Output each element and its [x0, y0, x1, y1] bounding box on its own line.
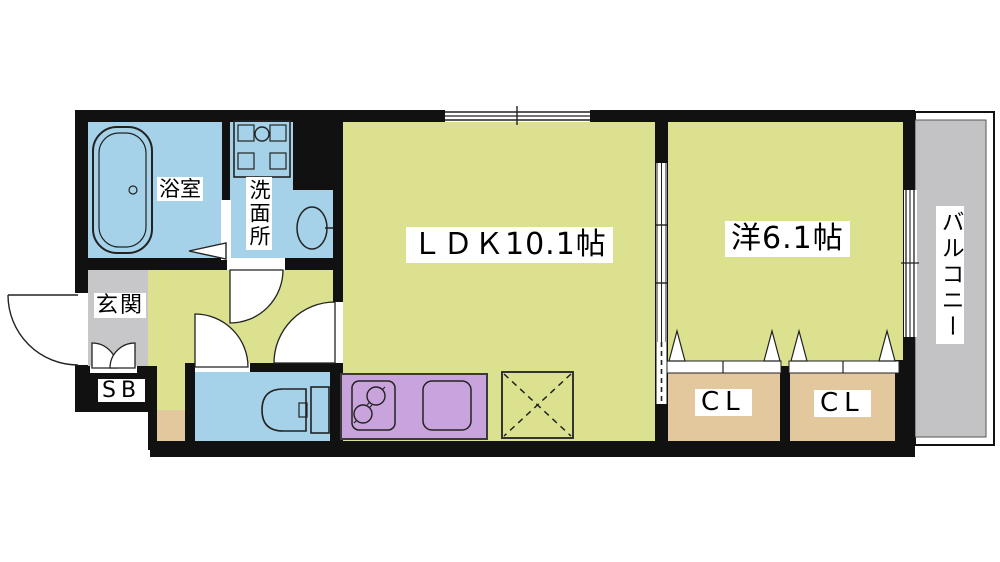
wall-bottom	[150, 441, 915, 457]
entrance-door-icon	[8, 295, 78, 365]
entrance-label: 玄関	[94, 293, 146, 318]
wall-toilet-left	[185, 368, 195, 450]
wall-ldk-west-upper	[333, 110, 343, 302]
floor-plan: 浴室 洗面所 玄関 SB ＬＤＫ10.1帖 洋6.1帖 CL CL バルコニー	[0, 0, 1000, 562]
ldk-label: ＬＤＫ10.1帖	[406, 227, 613, 263]
washroom-doorway	[227, 258, 285, 270]
kitchen-counter	[341, 374, 487, 439]
closet-right-label: CL	[814, 390, 871, 417]
closet-left-label: CL	[695, 389, 752, 416]
shoe-box-label: SB	[98, 379, 145, 402]
entrance-doorway	[75, 293, 88, 365]
wall-bath-washroom	[222, 122, 230, 202]
western-room-label: 洋6.1帖	[725, 221, 850, 257]
hallway-strip-floor	[155, 368, 188, 412]
sliding-door-icon	[656, 163, 667, 404]
toilet-floor	[193, 368, 334, 447]
wall-hall-strip	[148, 366, 157, 450]
washroom-label: 洗面所	[246, 177, 272, 250]
wall-closet-divider	[780, 366, 790, 445]
bathroom-label: 浴室	[157, 177, 203, 201]
floor-plan-drawing	[0, 0, 1000, 562]
balcony-label: バルコニー	[936, 206, 964, 344]
wall-under-bath	[75, 258, 343, 270]
storage-step	[155, 410, 188, 445]
